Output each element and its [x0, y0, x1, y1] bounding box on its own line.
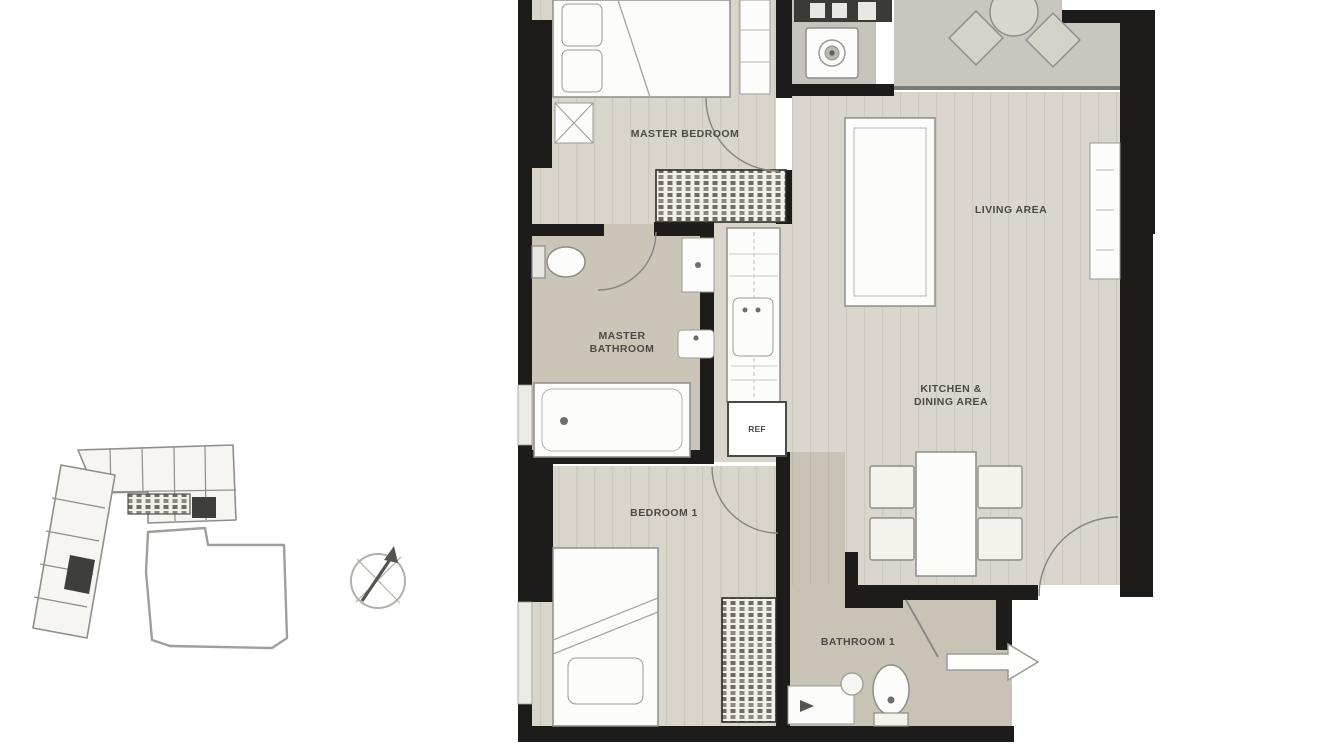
kitchen-counter-strip: REF	[727, 228, 786, 456]
sofa	[845, 118, 935, 306]
key-plan-dark-unit	[192, 497, 216, 518]
bathroom-sink	[678, 330, 714, 358]
toilet-tank	[532, 246, 545, 278]
tall-cabinet	[740, 0, 770, 94]
master-bathroom-label-line2: BATHROOM	[590, 343, 655, 355]
dining-chair	[870, 518, 914, 560]
key-plan-side-wing	[33, 465, 115, 638]
tv-console	[1090, 143, 1120, 279]
refrigerator-label: REF	[748, 424, 766, 434]
wall-column-left-lower	[518, 450, 553, 602]
kitchen-sink	[733, 298, 773, 356]
master-bathroom-label-line1: MASTER	[598, 330, 645, 342]
key-plan-amenity-outline	[146, 528, 287, 648]
door-pivot	[841, 673, 863, 695]
key-plan-unit-highlight	[128, 494, 190, 514]
toilet	[547, 247, 585, 277]
master-bath-window	[518, 385, 532, 445]
balcony-sliding-door	[894, 86, 1120, 90]
kitchen-dining-label-line2: DINING AREA	[914, 396, 988, 408]
kitchen-dining-label-line1: KITCHEN &	[920, 383, 981, 395]
toilet-tank	[874, 713, 908, 726]
wall-bottom	[518, 726, 1014, 742]
tub-drain	[560, 417, 568, 425]
wall-right-thick	[1120, 10, 1155, 234]
dining-table	[916, 452, 976, 576]
living-area-label: LIVING AREA	[975, 204, 1047, 216]
master-wardrobe	[656, 170, 786, 222]
dining-chair	[870, 466, 914, 508]
stove-burner	[832, 3, 847, 18]
bedroom1-label: BEDROOM 1	[630, 507, 698, 519]
north-arrow-compass-icon	[351, 546, 405, 608]
master-bedroom-label: MASTER BEDROOM	[631, 128, 739, 140]
dining-chair	[978, 466, 1022, 508]
stove-burner	[810, 3, 825, 18]
kitchen-nook	[794, 0, 892, 78]
floor-plan-page: REF	[0, 0, 1342, 754]
pillow	[562, 50, 602, 92]
pillow	[568, 658, 643, 704]
key-plan	[33, 445, 287, 648]
bathroom1-label: BATHROOM 1	[821, 636, 895, 648]
bathtub	[534, 383, 690, 457]
pillow	[562, 4, 602, 46]
wall-column-left	[518, 20, 552, 168]
dining-chair	[978, 518, 1022, 560]
bedroom1-wardrobe	[722, 598, 776, 722]
bedroom1-window	[518, 602, 532, 704]
stove-burner	[858, 2, 876, 20]
floor-plan-drawing: REF	[0, 0, 1342, 754]
bathroom1-toilet	[873, 665, 909, 715]
